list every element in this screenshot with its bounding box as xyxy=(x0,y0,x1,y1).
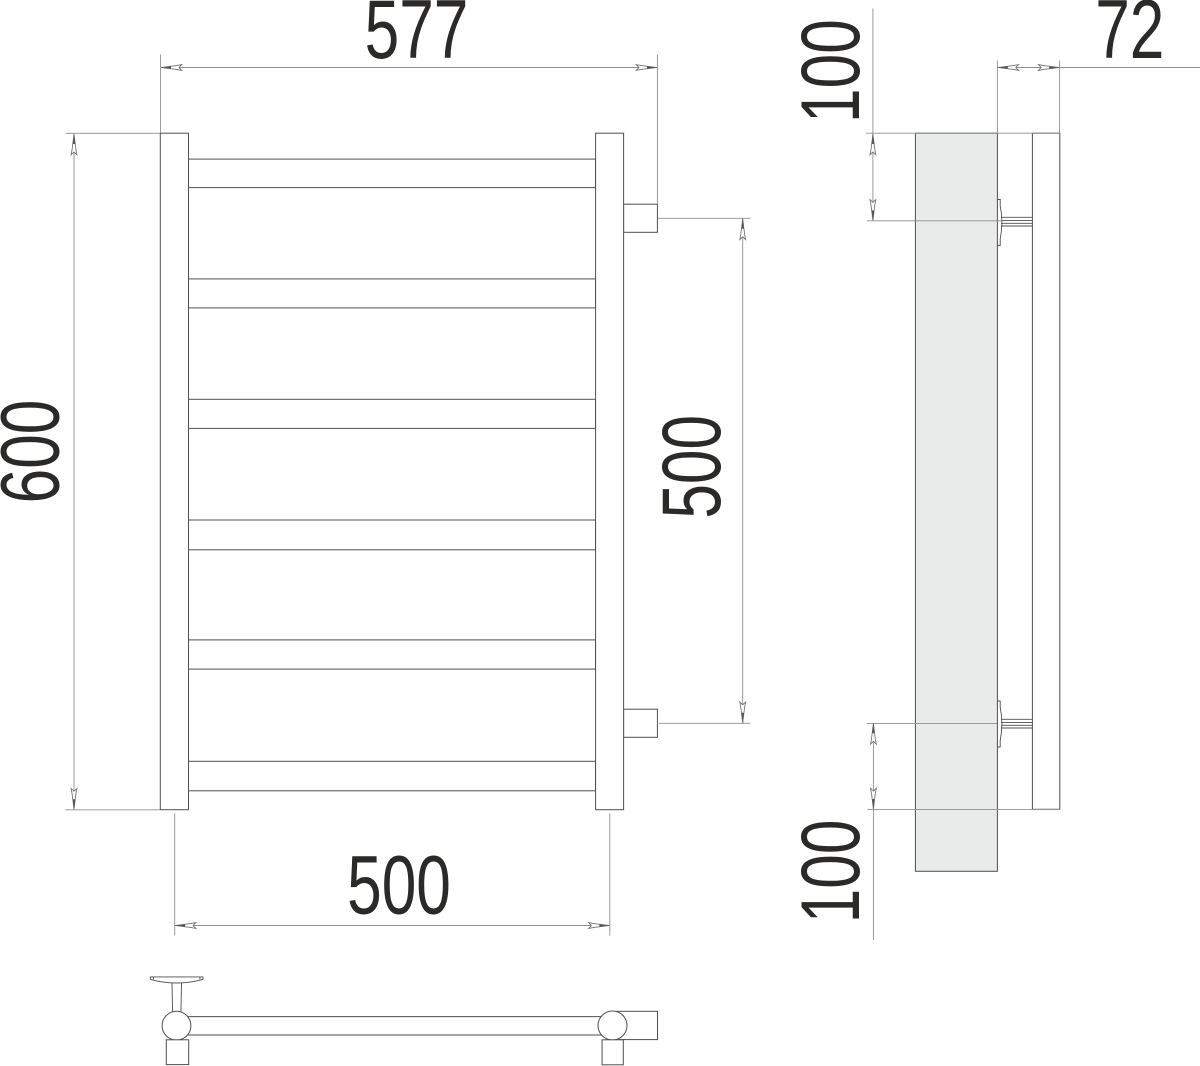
svg-text:577: 577 xyxy=(365,0,469,76)
svg-text:500: 500 xyxy=(644,415,738,519)
svg-text:600: 600 xyxy=(0,400,77,504)
svg-text:100: 100 xyxy=(783,19,877,123)
svg-text:72: 72 xyxy=(1095,0,1164,76)
svg-text:500: 500 xyxy=(347,838,451,932)
svg-text:100: 100 xyxy=(783,820,877,924)
